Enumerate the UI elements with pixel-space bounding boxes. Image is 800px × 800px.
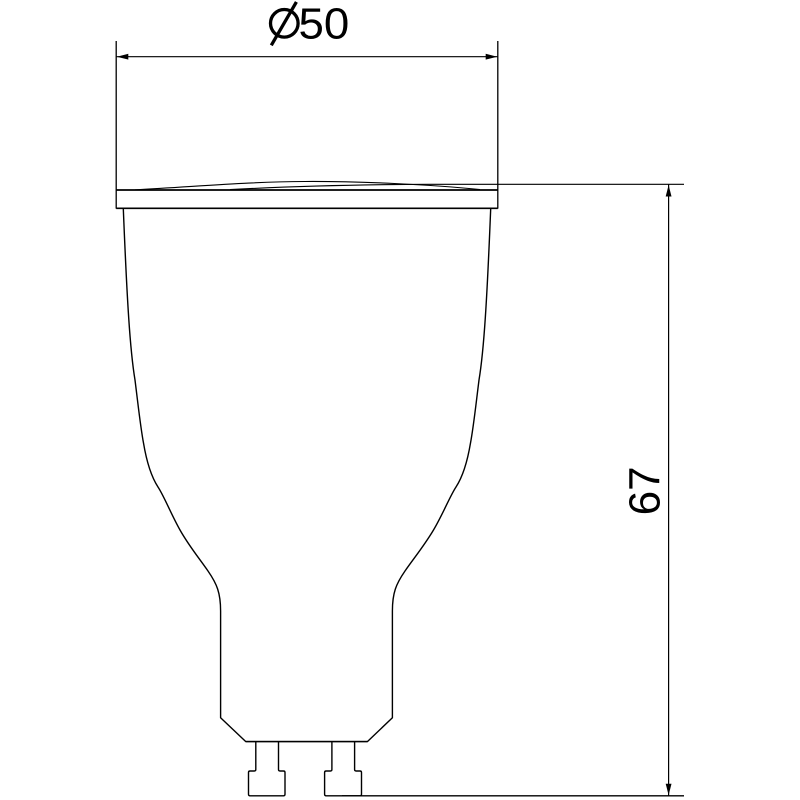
svg-text:50: 50	[299, 1, 350, 49]
svg-text:67: 67	[622, 466, 670, 515]
